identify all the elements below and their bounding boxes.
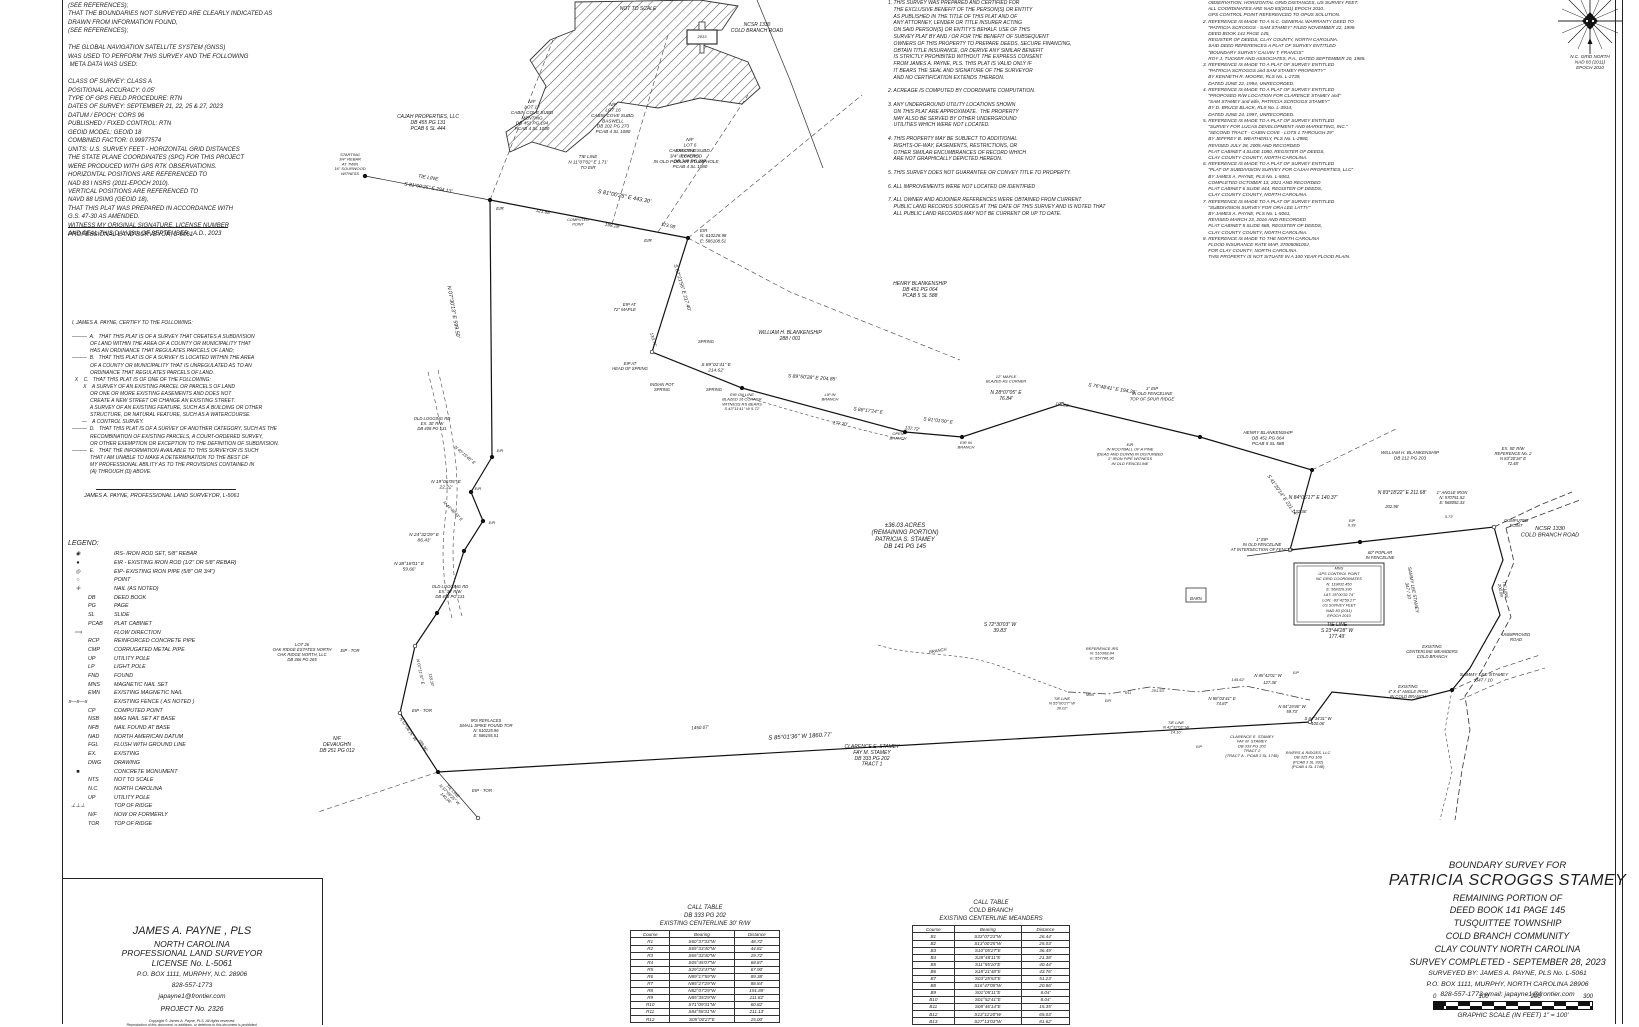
map-label: INDIAN POTSPRING — [650, 382, 674, 392]
map-label: S 89°50'28" E 204.85' — [788, 373, 838, 382]
references-notes: OBSERVATION. HORIZONTAL GRID DISTANCES, … — [1203, 0, 1398, 261]
call-table-cell: 15.35' — [1021, 1004, 1069, 1011]
call-table-cell: B7 — [913, 975, 955, 982]
map-label: EXISTING4" X 4" ANGLE IRONIN COLD BRANCH — [1388, 684, 1429, 699]
rw-centerline — [1068, 686, 1310, 700]
map-label: CAJAH PROPERTIES, LLCDB 455 PG 131PCAB 6… — [397, 114, 459, 132]
call-table-row: R9N85°35'29"W111.82' — [631, 994, 780, 1001]
call-table-cell: S60°37'33"W — [670, 938, 734, 945]
call-table-cell: S18°21'48"E — [954, 968, 1021, 975]
title-block-line: TUSQUITTEE TOWNSHIP — [1385, 918, 1630, 929]
call-table-cell: S16°47'09"W — [954, 982, 1021, 989]
legend-item: NFBNAIL FOUND AT BASE — [68, 724, 298, 733]
call-table-cell: S33°07'23"W — [954, 933, 1021, 940]
legend-item: EMNEXISTING MAGNETIC NAIL — [68, 689, 298, 698]
call-table-cell: S71°09'31"W — [670, 1002, 734, 1009]
call-table-cell: 19.72' — [734, 952, 779, 959]
call-table-cell: N89°17'59"W — [670, 973, 734, 980]
legend-abbr: CMP — [88, 647, 114, 653]
call-table-row: B10S01°52'41"E8.04' — [913, 997, 1070, 1004]
title-block-line: REMAINING PORTION OF — [1385, 893, 1630, 904]
map-label: 118.10' — [428, 673, 436, 687]
map-label: EIP6.39' — [1348, 519, 1356, 527]
map-label: NCSR 1330COLD BRANCH ROAD — [1521, 526, 1579, 539]
map-label: S 76°48'41" E 194.26' — [1088, 382, 1138, 396]
map-label: IRS REPLACESSMALL SPIKE FOUND TORN: 5102… — [459, 718, 512, 738]
map-label: 1" EIPIN OLD FENCELINEAT INTERSECTION OF… — [1230, 537, 1294, 552]
call-table-row: R11S84°58'31"W211.13' — [631, 1009, 780, 1016]
call-table-cell: B9 — [913, 989, 955, 996]
call-table-cell: N85°35'29"W — [670, 994, 734, 1001]
call-table-cell: 26.44' — [1021, 933, 1069, 940]
map-label: N 85°42'01" W — [1254, 673, 1282, 678]
call-table-header: Distance — [1021, 926, 1069, 933]
call-table-row: R6N89°17'59"W89.38' — [631, 973, 780, 980]
map-label: RIVERS & RIDGES, LLCDB 325 PG 100(PCAB 3… — [1286, 750, 1331, 769]
map-label: TIE LINE — [418, 173, 440, 182]
surveyor-block-line: PROJECT No. 2326 — [70, 1006, 314, 1014]
legend-abbr: NAD — [88, 734, 114, 740]
call-table-cell: 8.04' — [1021, 989, 1069, 996]
legend-desc: NORTH AMERICAN DATUM — [114, 734, 298, 740]
map-label: HENRY BLANKENSHIPDB 451 PG 064PCAB 5 SL … — [893, 281, 947, 299]
call-table-cell: 43.76' — [1021, 968, 1069, 975]
map-label: EIR INBRANCH — [958, 440, 975, 450]
legend-item: NADNORTH AMERICAN DATUM — [68, 732, 298, 741]
map-label: EIP — [1196, 745, 1202, 749]
call-table-cell: S13°00'25"W — [954, 940, 1021, 947]
call-table-cell: S01°05'11"E — [954, 989, 1021, 996]
map-label: 123.08' — [660, 222, 676, 230]
map-label: N 40°15'45" E — [453, 445, 476, 466]
legend-item: N.C.NORTH CAROLINA — [68, 785, 298, 794]
legend-item: DWGDRAWING — [68, 759, 298, 768]
map-label: N 88°03'41" E74.87' — [1208, 696, 1235, 706]
map-label: N 84°19'46" W59.73' — [1278, 704, 1306, 714]
legend-desc: NOW OR FORMERLY — [114, 812, 298, 818]
call-table-cell: 68.87' — [734, 959, 779, 966]
call-table-cell: 88.84' — [734, 980, 779, 987]
map-label: EIR — [496, 206, 504, 211]
scale-caption: GRAPHIC SCALE (IN FEET) 1" = 100' — [1408, 1012, 1618, 1019]
call-table-cold-branch: CALL TABLE COLD BRANCH EXISTING CENTERLI… — [912, 900, 1070, 1025]
call-table-cell: R1 — [631, 938, 670, 945]
legend-symbol: ◉ — [68, 551, 88, 557]
call-table-cell: R6 — [631, 973, 670, 980]
legend-symbol: ■ — [68, 769, 88, 775]
legend-item: SLSLIDE — [68, 611, 298, 620]
legend-abbr: EMN — [88, 690, 114, 696]
call-table-row: R2S65°33'40"W44.81' — [631, 945, 780, 952]
legend-item: N/FNOW OR FORMERLY — [68, 811, 298, 820]
legend-abbr: CP — [88, 708, 114, 714]
map-label: 198.28' — [604, 222, 620, 230]
certification-block: I, JAMES A. PAYNE, CERTIFY TO THE FOLLOW… — [72, 320, 322, 476]
legend-item: TORTOP OF RIDGE — [68, 819, 298, 828]
call-table-cell: 211.13' — [734, 1009, 779, 1016]
map-label: BARN — [1190, 596, 1203, 601]
call-table-cell: S29°23'47"W — [670, 966, 734, 973]
legend-item: ◉IRS- IRON ROD SET, 5/8" REBAR — [68, 550, 298, 559]
surveyor-block-line: P.O. BOX 1111, MURPHY, N.C. 28906 — [70, 971, 314, 978]
legend-item: FNDFOUND — [68, 672, 298, 681]
map-label: N 84°06'17" E 140.37' — [1289, 495, 1339, 501]
map-label: 202.96' — [1384, 504, 1399, 509]
legend-item: PGPAGE — [68, 602, 298, 611]
legend-desc: DEED BOOK — [114, 595, 298, 601]
map-label: EX. 50' R/WREFERENCE No. 2N 83°20'18" E7… — [1495, 446, 1533, 466]
legend-desc: EXISTING — [114, 751, 298, 757]
old-logging-road — [428, 370, 462, 618]
legend-desc: DRAWING — [114, 760, 298, 766]
legend-item: NTSNOT TO SCALE — [68, 776, 298, 785]
map-label: TIE LINEN 11°07'02" E 1.71'TO EIR — [568, 154, 607, 170]
legend-desc: CONCRETE MONUMENT — [114, 769, 298, 775]
map-label: S 81°00'25" E 443.30' — [597, 189, 652, 205]
call-table-cell: R4 — [631, 959, 670, 966]
map-label: S 88°17'24" E — [853, 406, 884, 416]
call-table-cell: N85°27'29"W — [670, 980, 734, 987]
legend-abbr: PG — [88, 603, 114, 609]
call-table-cell: S13°11'20"W — [954, 1011, 1021, 1018]
map-label: EIR — [475, 486, 482, 491]
legend-desc: LIGHT POLE — [114, 664, 298, 670]
map-label: COMPUTEDPOINT — [567, 218, 589, 226]
map-label: ±36.03 ACRES(REMAINING PORTION)PATRICIA … — [872, 523, 939, 550]
map-label: S 81°01'00" E — [923, 416, 954, 426]
legend-desc: NAIL (AS NOTED) — [114, 586, 298, 592]
scale-tick-labels: 0100200300 — [1433, 994, 1593, 1000]
map-label: EIR — [644, 238, 652, 243]
certification-signature-line — [96, 489, 236, 490]
map-label: R11 — [1125, 691, 1131, 695]
map-label: 5.73' — [1445, 515, 1453, 519]
map-label: 103.28' — [1055, 401, 1069, 408]
legend-desc: CORRUGATED METAL PIPE — [114, 647, 298, 653]
compass-rose — [1558, 0, 1622, 54]
map-label: 127.36' — [1263, 680, 1277, 685]
call-table-cell: S01°52'41"E — [954, 997, 1021, 1004]
graphic-scale: 0100200300 — [1433, 994, 1593, 1010]
map-label: OLD LOGGING RDEX. 30' R/WDB 408 PG 131 — [432, 584, 469, 599]
call-table-cell: N82°07'29"W — [670, 987, 734, 994]
call-table-cell: 44.81' — [734, 945, 779, 952]
legend-abbr: SL — [88, 612, 114, 618]
legend-desc: EIR - EXISTING IRON ROD (1/2" OR 5/8" RE… — [114, 560, 298, 566]
scale-tick: 300 — [1583, 994, 1593, 1000]
call-table-cell: B6 — [913, 968, 955, 975]
legend-symbol: x—x—x — [68, 699, 88, 705]
map-label: REFERENCE IRSN: 510368.84E: 557786.90 — [1086, 646, 1119, 660]
legend-desc: NOT TO SCALE — [114, 777, 298, 783]
legend-item: ■CONCRETE MONUMENT — [68, 767, 298, 776]
call-table-cell: B5 — [913, 961, 955, 968]
legend-desc: IRS- IRON ROD SET, 5/8" REBAR — [114, 551, 298, 557]
call-table-row: B11S08°46'14"E15.35' — [913, 1004, 1070, 1011]
call-table-cell: 21.38' — [1021, 954, 1069, 961]
map-label: CLARENCE E. STAMEYFAY M. STAMEYDB 333 PG… — [1225, 734, 1279, 758]
call-table-cell: B1 — [913, 933, 955, 940]
map-label: TIE LINEN 57°06'25" W140.06' — [435, 780, 466, 811]
map-label: EIR — [1105, 699, 1111, 703]
map-label: LIP INBRANCH — [822, 392, 839, 402]
legend-abbr: EX. — [88, 751, 114, 757]
legend-abbr: DB — [88, 595, 114, 601]
title-block-line: BOUNDARY SURVEY FOR — [1385, 860, 1630, 871]
call-table-cell: B4 — [913, 954, 955, 961]
legend-item: ◎EIP- EXISTING IRON PIPE (5/8" OR 3/4") — [68, 567, 298, 576]
map-label: 201.53' — [1151, 688, 1165, 693]
surveyor-block-line: 828-557-1773 — [70, 982, 314, 989]
map-label: 145.62' — [1232, 677, 1245, 682]
legend-desc: PLAT CABINET — [114, 621, 298, 627]
call-table-cell: S05°45'07"W — [670, 959, 734, 966]
map-label: N/FDEVAUGHNDB 251 PG 012 — [319, 736, 354, 754]
certification-signature: JAMES A. PAYNE, PROFESSIONAL LAND SURVEY… — [84, 493, 239, 499]
call-table-grid: CourseBearingDistanceR1S60°37'33"W48.72'… — [630, 930, 780, 1023]
legend-symbol: ⊥⊥⊥ — [68, 803, 88, 809]
sign-post-top — [699, 22, 705, 30]
legend-title: LEGEND: — [68, 540, 298, 547]
map-label: S 81°00'25" E 294.13' — [404, 181, 454, 195]
legend-item: UPUTILITY POLE — [68, 793, 298, 802]
legend-desc: EXISTING FENCE ( AS NOTED ) — [114, 699, 298, 705]
call-table-cell: S65°33'40"W — [670, 952, 734, 959]
legend-desc: NORTH CAROLINA — [114, 786, 298, 792]
north-arrow — [1588, 38, 1593, 44]
call-table-row: B5S11°55'10"E40.44' — [913, 961, 1070, 968]
map-label: EIP ATHEAD OF SPRING — [612, 361, 648, 371]
map-label: COMPUTEDPOINT — [1504, 518, 1528, 528]
legend-desc: FLOW DIRECTION — [114, 630, 298, 636]
call-table-cell: R8 — [631, 987, 670, 994]
call-table-cell: 51.23' — [1021, 975, 1069, 982]
legend-abbr: DWG — [88, 760, 114, 766]
legend-item: RCPREINFORCED CONCRETE PIPE — [68, 637, 298, 646]
legend-desc: NAIL FOUND AT BASE — [114, 725, 298, 731]
legend-desc: EXISTING MAGNETIC NAIL — [114, 690, 298, 696]
call-table-cell: R5 — [631, 966, 670, 973]
title-block-line: SURVEY COMPLETED - SEPTEMBER 28, 2023 — [1385, 957, 1630, 968]
legend-abbr: UP — [88, 656, 114, 662]
map-label: HENRY BLANKENSHIPDB 451 PG 064PCAB 5 SL … — [1243, 430, 1293, 446]
scale-tick: 200 — [1531, 994, 1541, 1000]
legend-item: LPLIGHT POLE — [68, 663, 298, 672]
call-table-row: B7S03°25'53"E51.23' — [913, 975, 1070, 982]
call-table-header: Course — [631, 931, 670, 938]
call-table-cell: B3 — [913, 947, 955, 954]
legend-item: EX.EXISTING — [68, 750, 298, 759]
legend-desc: FOUND — [114, 673, 298, 679]
call-table-header: Course — [913, 926, 955, 933]
legend-symbol: ✛ — [68, 586, 88, 592]
call-table-cell: 67.90' — [734, 966, 779, 973]
call-table-cell: 40.44' — [1021, 961, 1069, 968]
call-table-row: B8S16°47'09"W20.86' — [913, 982, 1070, 989]
surveyor-signature-line — [68, 227, 228, 228]
legend-abbr: FND — [88, 673, 114, 679]
map-label: EIP - TOR — [412, 708, 433, 713]
surveyor-block-line: LICENSE No. L-5061 — [70, 959, 314, 969]
map-label: OLD LOGGING RDEX. 30' R/WDB 408 PG 131 — [414, 416, 451, 431]
call-table-cell: R12 — [631, 1016, 670, 1023]
legend-abbr: LP — [88, 664, 114, 670]
call-table-cell: 8.04' — [1021, 997, 1069, 1004]
call-table-cell: S65°33'40"W — [670, 945, 734, 952]
legend: LEGEND: ◉IRS- IRON ROD SET, 5/8" REBAR●E… — [68, 540, 298, 828]
sign-post-bottom — [700, 44, 704, 53]
legend-item: ○POINT — [68, 576, 298, 585]
map-label: 12" MAPLEBLAZED AS CORNER — [986, 374, 1026, 384]
map-label: 132.36' — [1293, 509, 1307, 514]
legend-desc: UTILITY POLE — [114, 795, 298, 801]
map-label: 1" EIPIN OLD FENCELINETOP OF SPUR RIDGE — [1130, 386, 1175, 401]
call-table-cell: S05°00'27"E — [670, 1016, 734, 1023]
map-label: S 85°01'36" W 1860.77' — [768, 732, 832, 741]
map-label: NOT TO SCALE — [620, 6, 657, 12]
call-table-cell: S28°48'11"E — [954, 954, 1021, 961]
gnss-meta-notes: (SEE REFERENCES); THAT THE BOUNDARIES NO… — [68, 2, 318, 239]
legend-item: CPCOMPUTED POINT — [68, 706, 298, 715]
legend-abbr: NTS — [88, 777, 114, 783]
call-table-cell: S10°05'27"E — [954, 947, 1021, 954]
legend-abbr: TOR — [88, 821, 114, 827]
call-table-cell: R2 — [631, 945, 670, 952]
map-label: N.C. GRID NORTHNAD 83 (2011)EPOCH 2010 — [1570, 54, 1610, 70]
legend-item: CMPCORRUGATED METAL PIPE — [68, 646, 298, 655]
legend-item: MNSMAGNETIC NAIL SET — [68, 680, 298, 689]
map-label: S 84°34'31" W100.06' — [1304, 716, 1332, 726]
map-label: EIR — [489, 520, 496, 525]
call-table-row: B9S01°05'11"E8.04' — [913, 989, 1070, 996]
cold-branch-road — [1452, 492, 1580, 820]
map-label: EIP — [1293, 671, 1299, 675]
legend-desc: TOP OF RIDGE — [114, 821, 298, 827]
call-table-cell: R3 — [631, 952, 670, 959]
scale-tick: 100 — [1479, 994, 1489, 1000]
call-table-row: R4S05°45'07"W68.87' — [631, 959, 780, 966]
legend-desc: POINT — [114, 577, 298, 583]
call-table-cell: B10 — [913, 997, 955, 1004]
legend-item: FGLFLUSH WITH GROUND LINE — [68, 741, 298, 750]
legend-abbr: NSB — [88, 716, 114, 722]
legend-symbol: ● — [68, 560, 88, 566]
call-table-rw: CALL TABLE DB 333 PG 202 EXISTING CENTER… — [630, 905, 780, 1023]
map-label: EIP - TOR — [472, 788, 493, 793]
legend-item: ⊥⊥⊥TOP OF RIDGE — [68, 802, 298, 811]
map-label: N 24°32'29" E86.43' — [409, 532, 440, 544]
call-table-cell: S03°25'53"E — [954, 975, 1021, 982]
call-table-cell: S11°55'10"E — [954, 961, 1021, 968]
legend-desc: SLIDE — [114, 612, 298, 618]
call-table-row: B2S13°00'25"W25.03' — [913, 940, 1070, 947]
call-table-row: R1S60°37'33"W48.72' — [631, 938, 780, 945]
legend-desc: REINFORCED CONCRETE PIPE — [114, 638, 298, 644]
map-label: EIR — [497, 448, 504, 453]
legend-abbr: PCAB — [88, 621, 114, 627]
parcel-boundary — [400, 200, 1503, 772]
map-label: 2833 — [697, 34, 708, 39]
legend-desc: FLUSH WITH GROUND LINE — [114, 742, 298, 748]
legend-desc: TOP OF RIDGE — [114, 803, 298, 809]
call-table-header: Bearing — [954, 926, 1021, 933]
map-label: BRANCH — [929, 646, 948, 654]
legend-desc: MAGNETIC NAIL SET — [114, 682, 298, 688]
legend-symbol: ◎ — [68, 569, 88, 575]
legend-item: ●EIR - EXISTING IRON ROD (1/2" OR 5/8" R… — [68, 559, 298, 568]
scale-tick: 0 — [1433, 994, 1436, 1000]
surveyor-block-line: japayne1@frontier.com — [70, 993, 314, 1000]
call-table-title: CALL TABLE DB 333 PG 202 EXISTING CENTER… — [630, 905, 780, 928]
legend-abbr: FGL — [88, 742, 114, 748]
map-label: UNIMPROVEDROAD — [1502, 632, 1530, 642]
legend-item: ✛NAIL (AS NOTED) — [68, 585, 298, 594]
legend-desc: UTILITY POLE — [114, 656, 298, 662]
legend-item: x—x—xEXISTING FENCE ( AS NOTED ) — [68, 698, 298, 707]
map-label: SPRING — [698, 339, 715, 344]
map-label: TIE LINE200.09' — [1497, 581, 1510, 600]
legend-abbr: MNS — [88, 682, 114, 688]
map-label: CLARENCE E. STAMEYFAY M. STAMEYDB 333 PG… — [845, 744, 901, 768]
call-table-row: B12S13°11'20"W65.03' — [913, 1011, 1070, 1018]
surveyor-title-block: JAMES A. PAYNE , PLSNORTH CAROLINAPROFES… — [70, 925, 314, 1027]
legend-desc: COMPUTED POINT — [114, 708, 298, 714]
title-block: BOUNDARY SURVEY FORPATRICIA SCROGGS STAM… — [1385, 860, 1630, 999]
map-label: 60" POPLARIN FENCELINE — [1366, 550, 1395, 560]
call-table-cell: R9 — [631, 994, 670, 1001]
call-table-row: R8N82°07'29"W191.89' — [631, 987, 780, 994]
map-label: 121.88' — [535, 208, 551, 216]
legend-items: ◉IRS- IRON ROD SET, 5/8" REBAR●EIR - EXI… — [68, 550, 298, 828]
call-table-cell: 191.89' — [734, 987, 779, 994]
map-label: NCSR 1330COLD BRANCH ROAD — [731, 22, 784, 34]
map-label: EIR ON LINEBLAZED 16 CORNERWITNESS RS BE… — [722, 392, 762, 411]
call-table-cell: B12 — [913, 1011, 955, 1018]
map-label: MNS — [1086, 693, 1095, 697]
call-table-row: R7N85°27'29"W88.84' — [631, 980, 780, 987]
call-table-cell: 60.82' — [734, 1002, 779, 1009]
call-table-row: R12S05°00'27"E15.00' — [631, 1016, 780, 1023]
call-table-cell: 15.00' — [734, 1016, 779, 1023]
call-table-cell: S84°58'31"W — [670, 1009, 734, 1016]
vicinity-sketch — [506, 0, 823, 168]
map-label: TIE LINEN 55°00'27" W30.02' — [1049, 696, 1076, 710]
call-table-cell: R10 — [631, 1002, 670, 1009]
survey-plat-sheet: { "gnss_notes": "(SEE REFERENCES);\nTHAT… — [0, 0, 1639, 1024]
legend-item: NSBMAG NAIL SET AT BASE — [68, 715, 298, 724]
map-label: TIE LINEN 42°32'02" W14.10' — [1163, 720, 1190, 734]
map-label: N 28°07'05" E76.84' — [990, 390, 1022, 402]
legend-desc: PAGE — [114, 603, 298, 609]
map-label: SAMMY LEE STAMEY347 / 10 — [1460, 672, 1509, 684]
map-label: EIRN: 610228.98E: 586108.51 — [700, 228, 727, 243]
map-label: STARTING3/4" REBARAT TWIN16" SOURWOODWIT… — [334, 152, 365, 176]
call-table-cell: R7 — [631, 980, 670, 987]
map-label: SAMMY LEE STAMEY347 / 10 — [1402, 566, 1421, 615]
title-block-line: SURVEYED BY: JAMES A. PAYNE, PLS No. L-5… — [1385, 970, 1630, 978]
legend-abbr: RCP — [88, 638, 114, 644]
map-label: S 72°30'03" W39.83' — [984, 622, 1018, 634]
title-block-line: PATRICIA SCROGGS STAMEY — [1385, 871, 1630, 890]
legend-abbr: N/F — [88, 812, 114, 818]
general-notes: 1. THIS SURVEY WAS PREPARED AND CERTIFIE… — [888, 0, 1103, 218]
call-table-cell: 36.49' — [1021, 947, 1069, 954]
legend-item: DBDEED BOOK — [68, 593, 298, 602]
call-table-cell: 20.86' — [1021, 982, 1069, 989]
map-label: 177.20' — [832, 420, 848, 427]
map-label: N 07°11'37" E — [415, 659, 425, 685]
call-table-cell: 25.03' — [1021, 940, 1069, 947]
